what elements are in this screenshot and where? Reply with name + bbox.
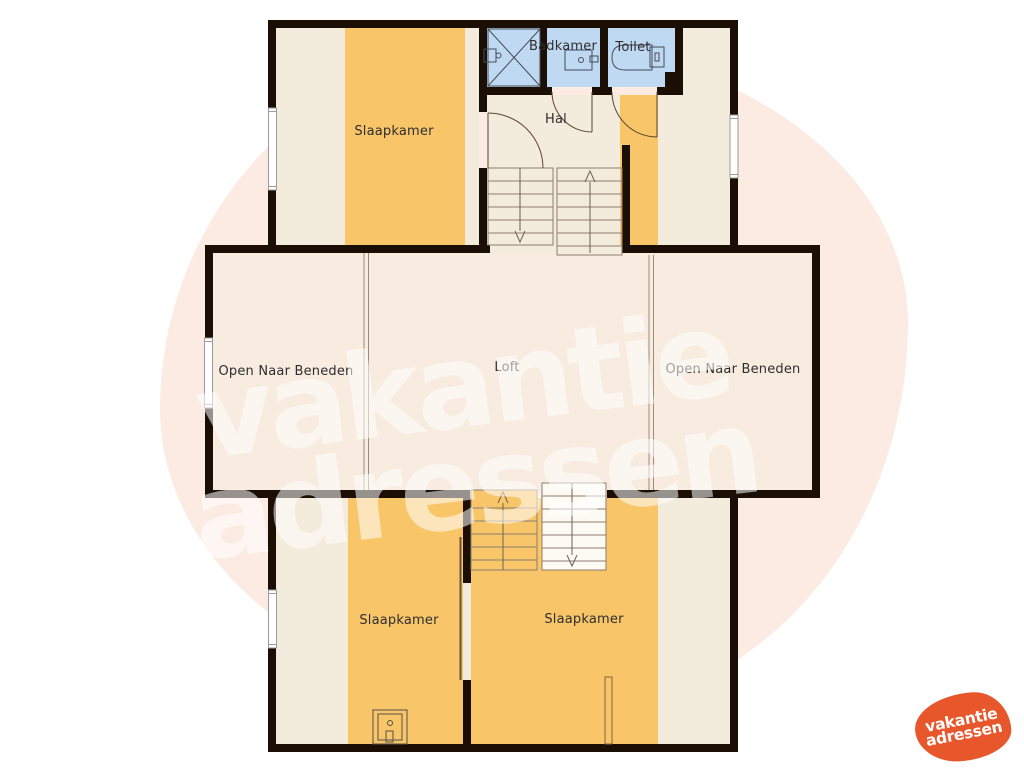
wall (268, 498, 276, 590)
room-label-bedroom-top: Slaapkamer (324, 124, 464, 139)
wall (622, 245, 820, 253)
wall (205, 245, 490, 253)
wall (205, 408, 213, 498)
wall (730, 178, 738, 253)
room-label-void-right: Open Naar Beneden (663, 362, 803, 377)
wall (540, 28, 547, 87)
wall (730, 28, 738, 115)
wall (463, 680, 471, 752)
room-label-toilet: Toilet (603, 40, 663, 55)
wall (268, 648, 276, 752)
wall (607, 490, 820, 498)
wall (268, 744, 738, 752)
floorplan-canvas: Slaapkamer Badkamer Toilet Hal Open Naar… (0, 0, 1024, 768)
wall (268, 28, 276, 108)
wall (205, 253, 213, 338)
wall (463, 498, 471, 583)
room-label-hall: Hal (526, 112, 586, 127)
vakantieadressen-logo: vakantie adressen (915, 688, 1021, 766)
top-right-floor (683, 28, 730, 95)
floorplan: Slaapkamer Badkamer Toilet Hal Open Naar… (0, 0, 1024, 768)
wall (479, 28, 487, 112)
room-label-void-left: Open Naar Beneden (216, 364, 356, 379)
room-label-bathroom: Badkamer (513, 39, 613, 54)
wall (812, 253, 820, 498)
wall (730, 498, 738, 752)
wall (622, 145, 630, 253)
wall (657, 87, 683, 95)
wall (268, 190, 276, 253)
room-label-bedroom-bl: Slaapkamer (329, 613, 469, 628)
logo-text: vakantie adressen (922, 706, 1003, 748)
room-label-loft: Loft (477, 360, 537, 375)
wall (592, 87, 612, 95)
hall-floor (487, 95, 730, 253)
wall (479, 168, 487, 253)
wall (487, 87, 552, 95)
room-label-bedroom-br: Slaapkamer (514, 612, 654, 627)
wall (268, 20, 738, 28)
wall (205, 490, 470, 498)
logo-blob: vakantie adressen (913, 690, 1014, 765)
